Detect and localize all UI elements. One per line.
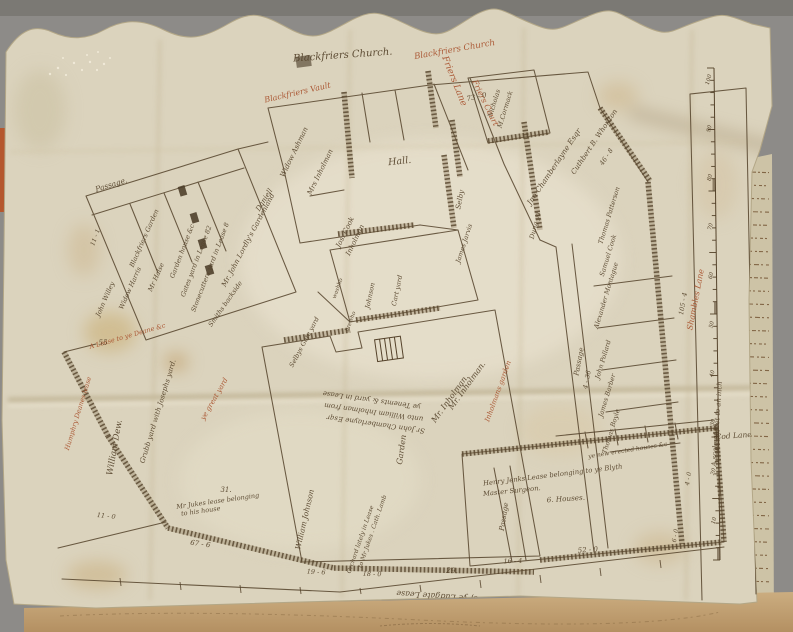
measure-19-6-label: 19 - 6: [307, 568, 326, 577]
backdrop-top-shadow: [0, 0, 793, 16]
measure-31-label: 31.: [220, 486, 231, 494]
measure-55-label: 55: [99, 339, 108, 347]
map-scan: 100908070605040302010 Blackfriers Church…: [0, 0, 793, 632]
scale-segment: [717, 548, 720, 560]
scanned-map-photo: 100908070605040302010 Blackfriers Church…: [0, 0, 793, 632]
scale-segment: [714, 302, 717, 314]
measure-29-label: 29.: [445, 566, 458, 575]
measure-16-4-label: 16 - 4: [503, 557, 522, 566]
measure-18-0-label: 18 - 0: [363, 570, 382, 579]
measure-52-0-label: 52 - 0: [578, 545, 599, 554]
scale-segment: [713, 179, 716, 191]
